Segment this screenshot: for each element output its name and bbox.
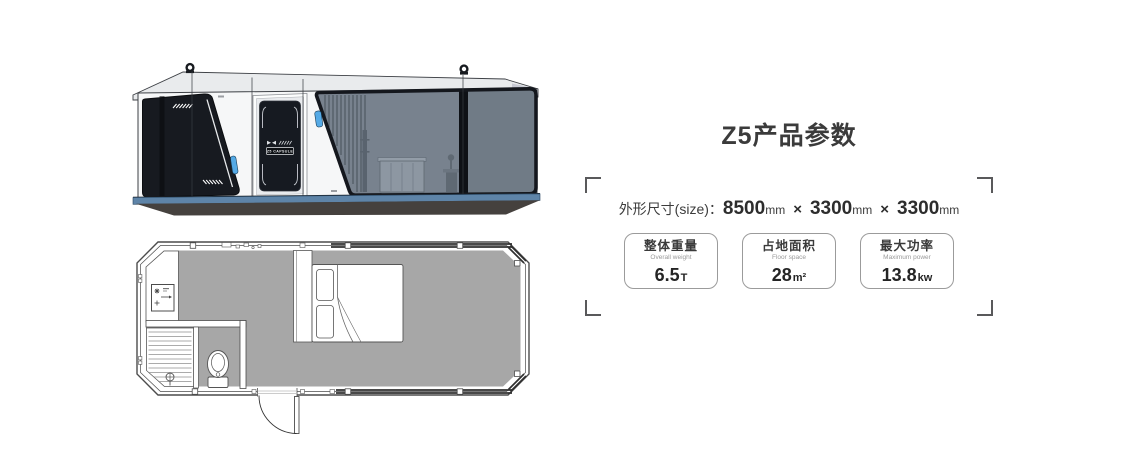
frame-corner-top-left [585,177,601,193]
control-panel-box [152,285,175,312]
pillow [317,270,334,301]
bathroom-wall-vertical [240,321,246,389]
frame-corner-top-right [977,177,993,193]
overall-size-line: 外形尺寸(size)：8500mm×3300mm×3300mm [585,198,993,221]
spec-card-weight: 整体重量 Overall weight 6.5T [624,233,718,289]
multiply-sign: × [793,201,802,218]
spec-card-max-power: 最大功率 Maximum power 13.8kw [860,233,954,289]
spec-label-en: Overall weight [625,254,717,262]
multiply-sign: × [880,201,889,218]
spec-frame: 外形尺寸(size)：8500mm×3300mm×3300mm 整体重量 Ove… [585,177,993,316]
size-width: 3300 [810,198,852,219]
spec-value: 13.8kw [861,265,953,288]
door-badge: Z5 CAPSULE [267,148,294,155]
glass-right-tint [468,90,534,193]
spec-card-row: 整体重量 Overall weight 6.5T 占地面积 Floor spac… [585,233,993,289]
frame-corner-bottom-right [977,300,993,316]
capsule-floor-plan [130,232,550,471]
spec-card-floor-space: 占地面积 Floor space 28m² [742,233,836,289]
spec-label-cn: 整体重量 [625,239,717,253]
bathroom-wall-horizontal [146,321,246,328]
spec-unit: T [681,272,688,284]
page: Z5 CAPSULE [0,0,1130,471]
spec-label-cn: 最大功率 [861,239,953,253]
spec-value: 6.5T [625,265,717,288]
spec-unit: kw [918,272,933,284]
brand-mark-top [218,96,224,98]
spec-unit: m² [793,272,806,284]
double-bed [312,265,403,343]
wardrobe-partition [294,251,313,343]
frame-corner-bottom-left [585,300,601,316]
size-length: 8500 [723,198,765,219]
entry-door-plan [258,388,300,434]
shower-divider-wall [194,327,199,388]
spec-value: 28m² [743,265,835,288]
lifting-hook-right [460,66,468,75]
panoramic-window [314,89,536,195]
door-swing-arc [259,396,297,434]
pillow [317,306,334,339]
door-badge-text: Z5 CAPSULE [267,150,294,154]
entry-door: Z5 CAPSULE [253,94,307,198]
spec-label-en: Floor space [743,254,835,262]
lifting-hook-left [186,64,194,73]
page-title: Z5产品参数 [585,116,993,152]
size-label: 外形尺寸(size)： [619,201,723,217]
spec-label-en: Maximum power [861,254,953,262]
door-leaf [295,397,300,434]
floor-plan-drawing [137,242,529,434]
interior-dresser-silhouette [378,158,426,193]
brand-mark-bottom [331,190,337,192]
toilet [208,351,229,388]
window-mullion [459,90,468,194]
elevation-drawing: Z5 CAPSULE [133,64,540,215]
capsule-side-elevation: Z5 CAPSULE [100,55,550,230]
size-height: 3300 [897,198,939,219]
spec-label-cn: 占地面积 [743,239,835,253]
